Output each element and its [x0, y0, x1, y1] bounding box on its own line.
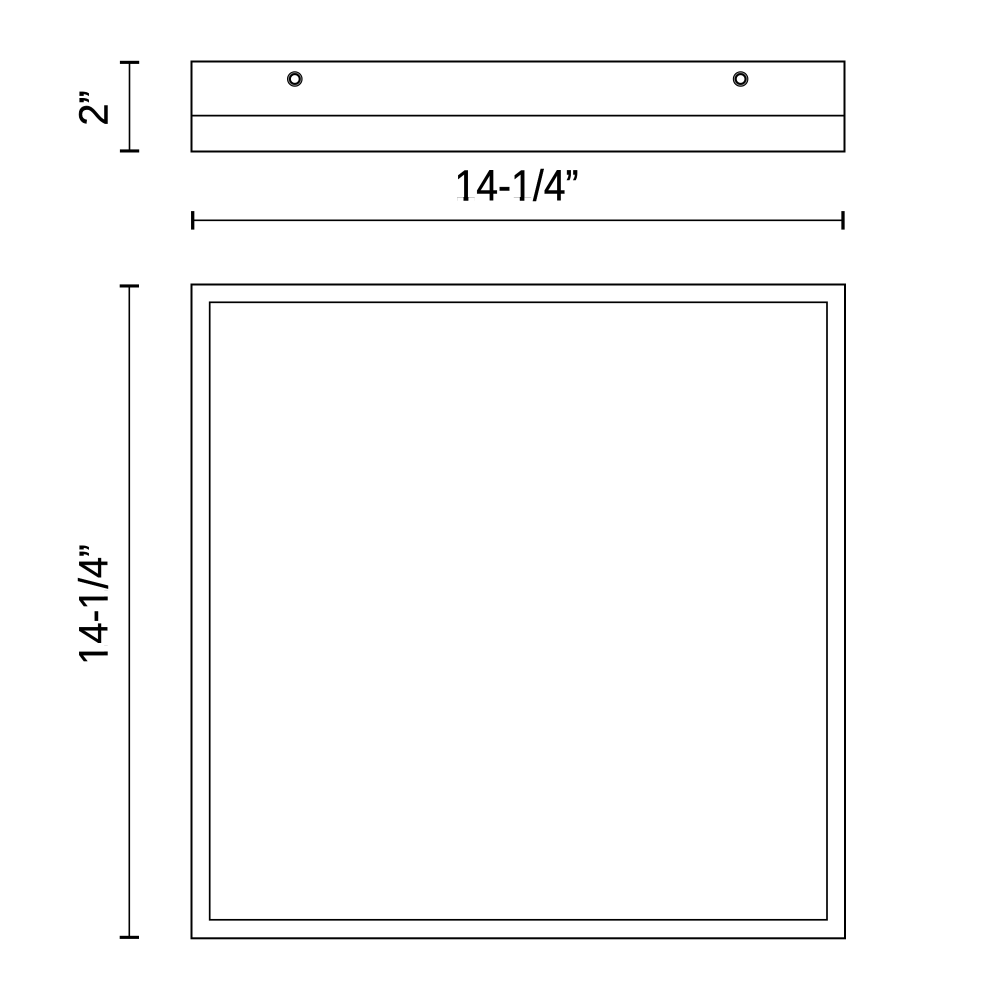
- svg-text:2”: 2”: [70, 90, 117, 125]
- svg-text:14-1/4”: 14-1/4”: [454, 161, 578, 211]
- svg-text:14-1/4”: 14-1/4”: [71, 544, 117, 664]
